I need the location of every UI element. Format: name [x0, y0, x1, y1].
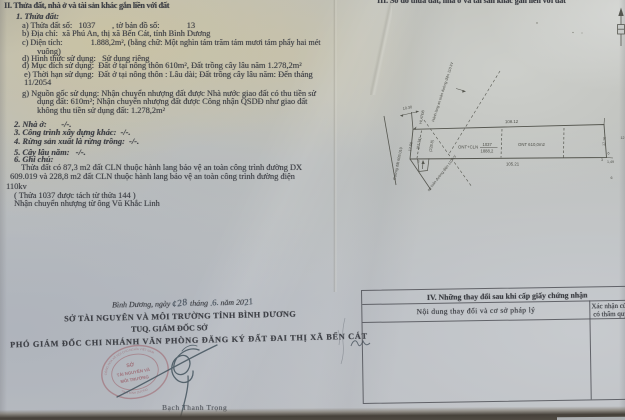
- svg-text:SỞ: SỞ: [126, 361, 136, 369]
